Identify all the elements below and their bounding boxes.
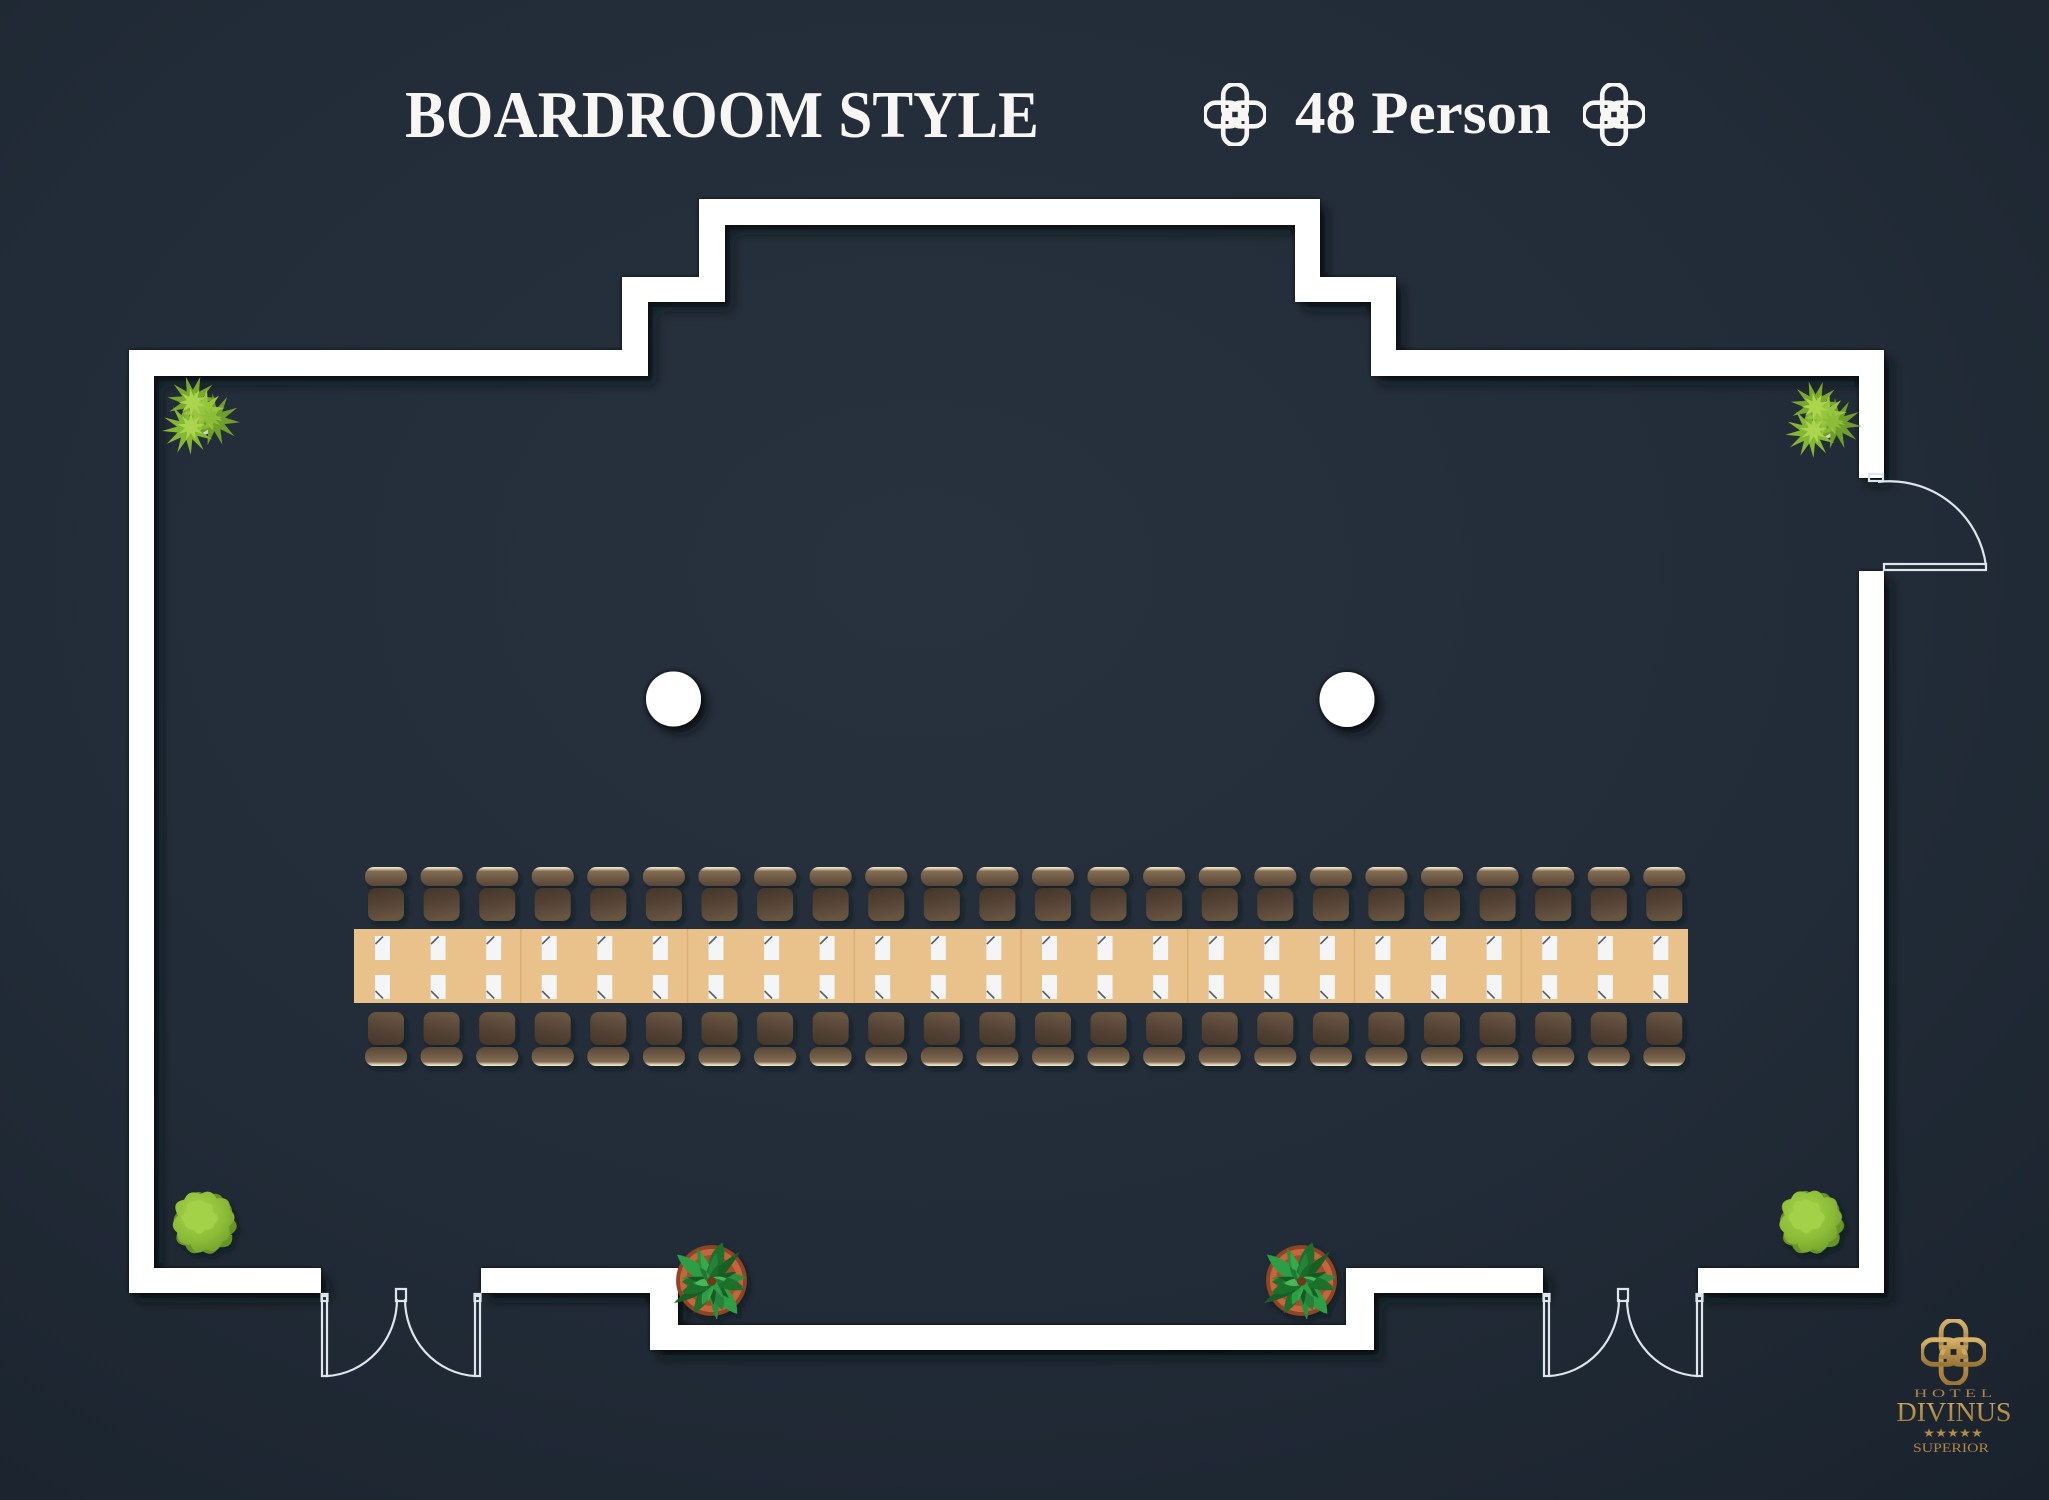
svg-text:SUPERIOR: SUPERIOR (1913, 1440, 1989, 1455)
svg-text:★★★★★: ★★★★★ (1923, 1426, 1983, 1440)
svg-text:DIVINUS: DIVINUS (1897, 1397, 2012, 1427)
svg-text:48 Person: 48 Person (1295, 80, 1551, 146)
svg-text:BOARDROOM STYLE: BOARDROOM STYLE (405, 78, 1039, 152)
